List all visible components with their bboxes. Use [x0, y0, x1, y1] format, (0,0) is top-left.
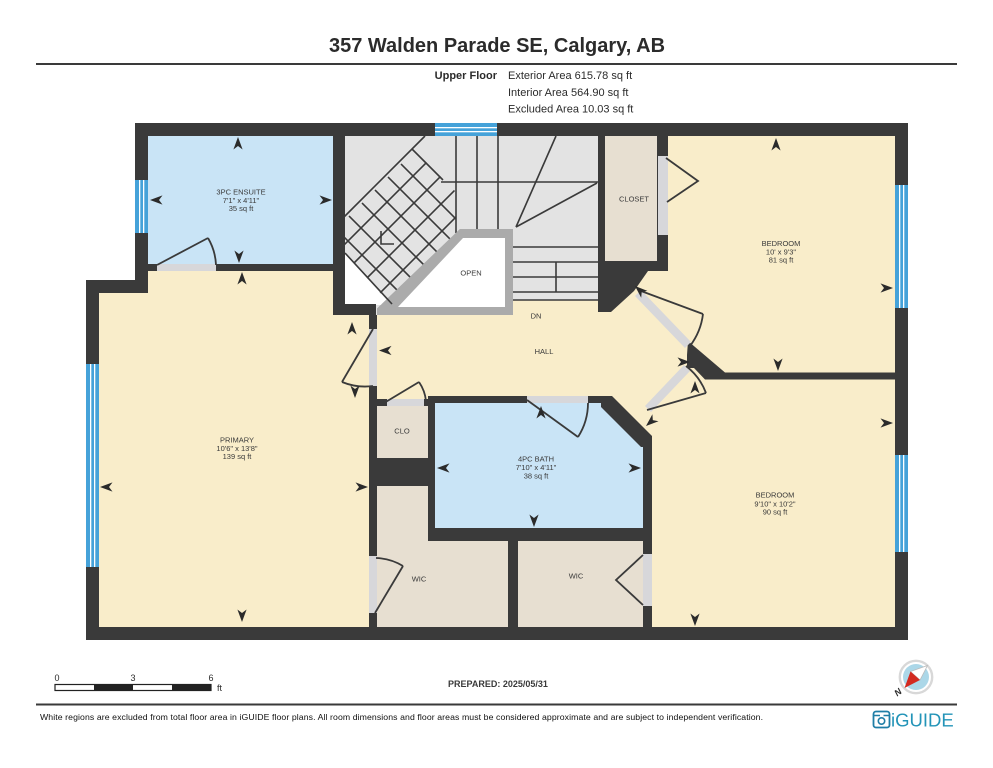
svg-text:3: 3 — [130, 673, 135, 683]
svg-text:357 Walden Parade SE, Calgary,: 357 Walden Parade SE, Calgary, AB — [329, 35, 665, 57]
svg-text:WIC: WIC — [569, 572, 584, 581]
svg-text:HALL: HALL — [535, 347, 554, 356]
svg-text:0: 0 — [54, 673, 59, 683]
svg-text:CLO: CLO — [394, 427, 410, 436]
svg-text:81 sq ft: 81 sq ft — [769, 256, 795, 265]
svg-text:6: 6 — [208, 673, 213, 683]
svg-text:iGUIDE: iGUIDE — [891, 710, 954, 731]
svg-text:ft: ft — [217, 683, 223, 693]
svg-text:Excluded Area 10.03 sq ft: Excluded Area 10.03 sq ft — [508, 104, 633, 116]
svg-text:WIC: WIC — [412, 575, 427, 584]
svg-text:90 sq ft: 90 sq ft — [763, 508, 789, 517]
svg-text:Upper Floor: Upper Floor — [435, 70, 498, 82]
svg-text:PREPARED: 2025/05/31: PREPARED: 2025/05/31 — [448, 679, 548, 689]
svg-text:38 sq ft: 38 sq ft — [524, 472, 550, 481]
svg-text:139 sq ft: 139 sq ft — [223, 452, 253, 461]
svg-text:CLOSET: CLOSET — [619, 195, 649, 204]
svg-text:OPEN: OPEN — [460, 269, 481, 278]
svg-text:Exterior Area 615.78 sq ft: Exterior Area 615.78 sq ft — [508, 70, 632, 82]
svg-text:35 sq ft: 35 sq ft — [229, 204, 255, 213]
svg-text:BEDROOM: BEDROOM — [756, 491, 795, 500]
svg-text:DN: DN — [531, 312, 542, 321]
svg-text:White regions are excluded fro: White regions are excluded from total fl… — [40, 712, 763, 722]
svg-text:Interior Area 564.90 sq ft: Interior Area 564.90 sq ft — [508, 87, 628, 99]
